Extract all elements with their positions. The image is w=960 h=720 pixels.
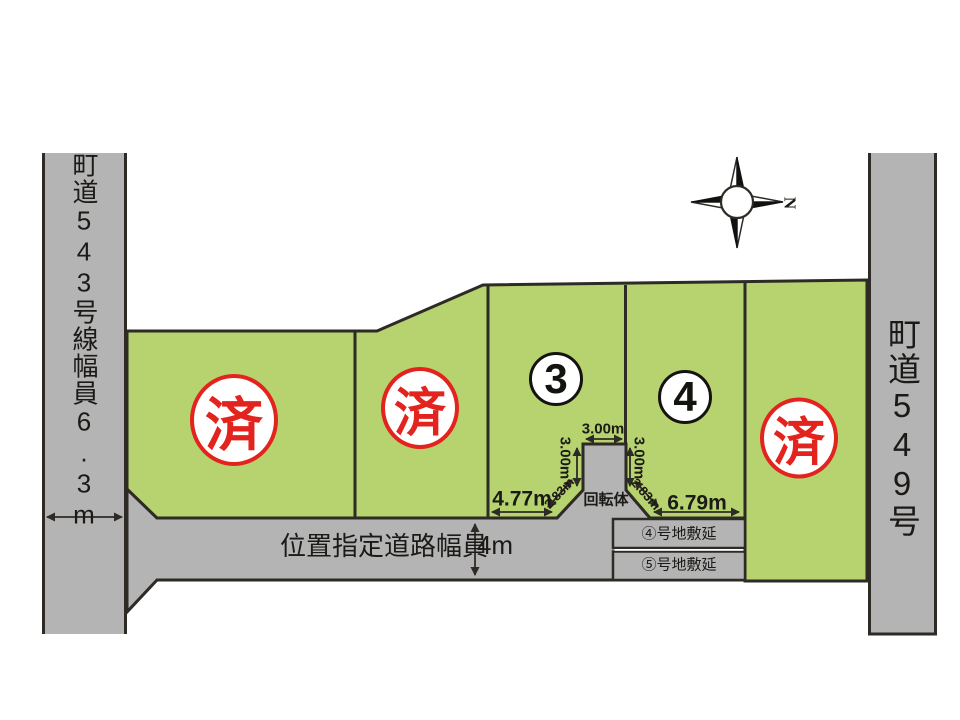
left-road-label: 町道543号線幅員6.3m bbox=[71, 152, 97, 531]
land-subdivision-plan: 町道543号線幅員6.3m 町道549号 位置指定道路幅員 4m 済 済 済 3… bbox=[0, 0, 960, 720]
plot1-sold-stamp: 済 bbox=[190, 374, 278, 466]
dim-plot4-frontage: 6.79m bbox=[667, 493, 727, 514]
plan-drawing bbox=[0, 0, 960, 720]
turning-area-label: 回転体 bbox=[583, 493, 628, 508]
plot5-sold-stamp: 済 bbox=[760, 398, 838, 479]
plot5-extension-label: ⑤号地敷延 bbox=[641, 558, 716, 573]
right-road-label: 町道549号 bbox=[886, 317, 919, 539]
dim-turnaround-right-depth: 3.00m bbox=[632, 437, 647, 480]
front-road-width-value: 4m bbox=[477, 532, 513, 558]
extension-strip-gap bbox=[615, 549, 744, 551]
plot2-sold-stamp: 済 bbox=[381, 367, 459, 449]
plot4-extension-label: ④号地敷延 bbox=[641, 527, 716, 542]
front-road-label: 位置指定道路幅員 bbox=[280, 533, 488, 559]
dim-turnaround-top-width: 3.00m bbox=[582, 422, 625, 437]
compass-north-label: N bbox=[782, 197, 799, 209]
plot4-number-badge: 4 bbox=[658, 370, 712, 424]
plot3-number-badge: 3 bbox=[529, 352, 583, 406]
compass-rose-icon bbox=[691, 157, 783, 248]
dim-turnaround-left-depth: 3.00m bbox=[558, 437, 573, 480]
dim-plot3-frontage: 4.77m bbox=[492, 489, 552, 510]
